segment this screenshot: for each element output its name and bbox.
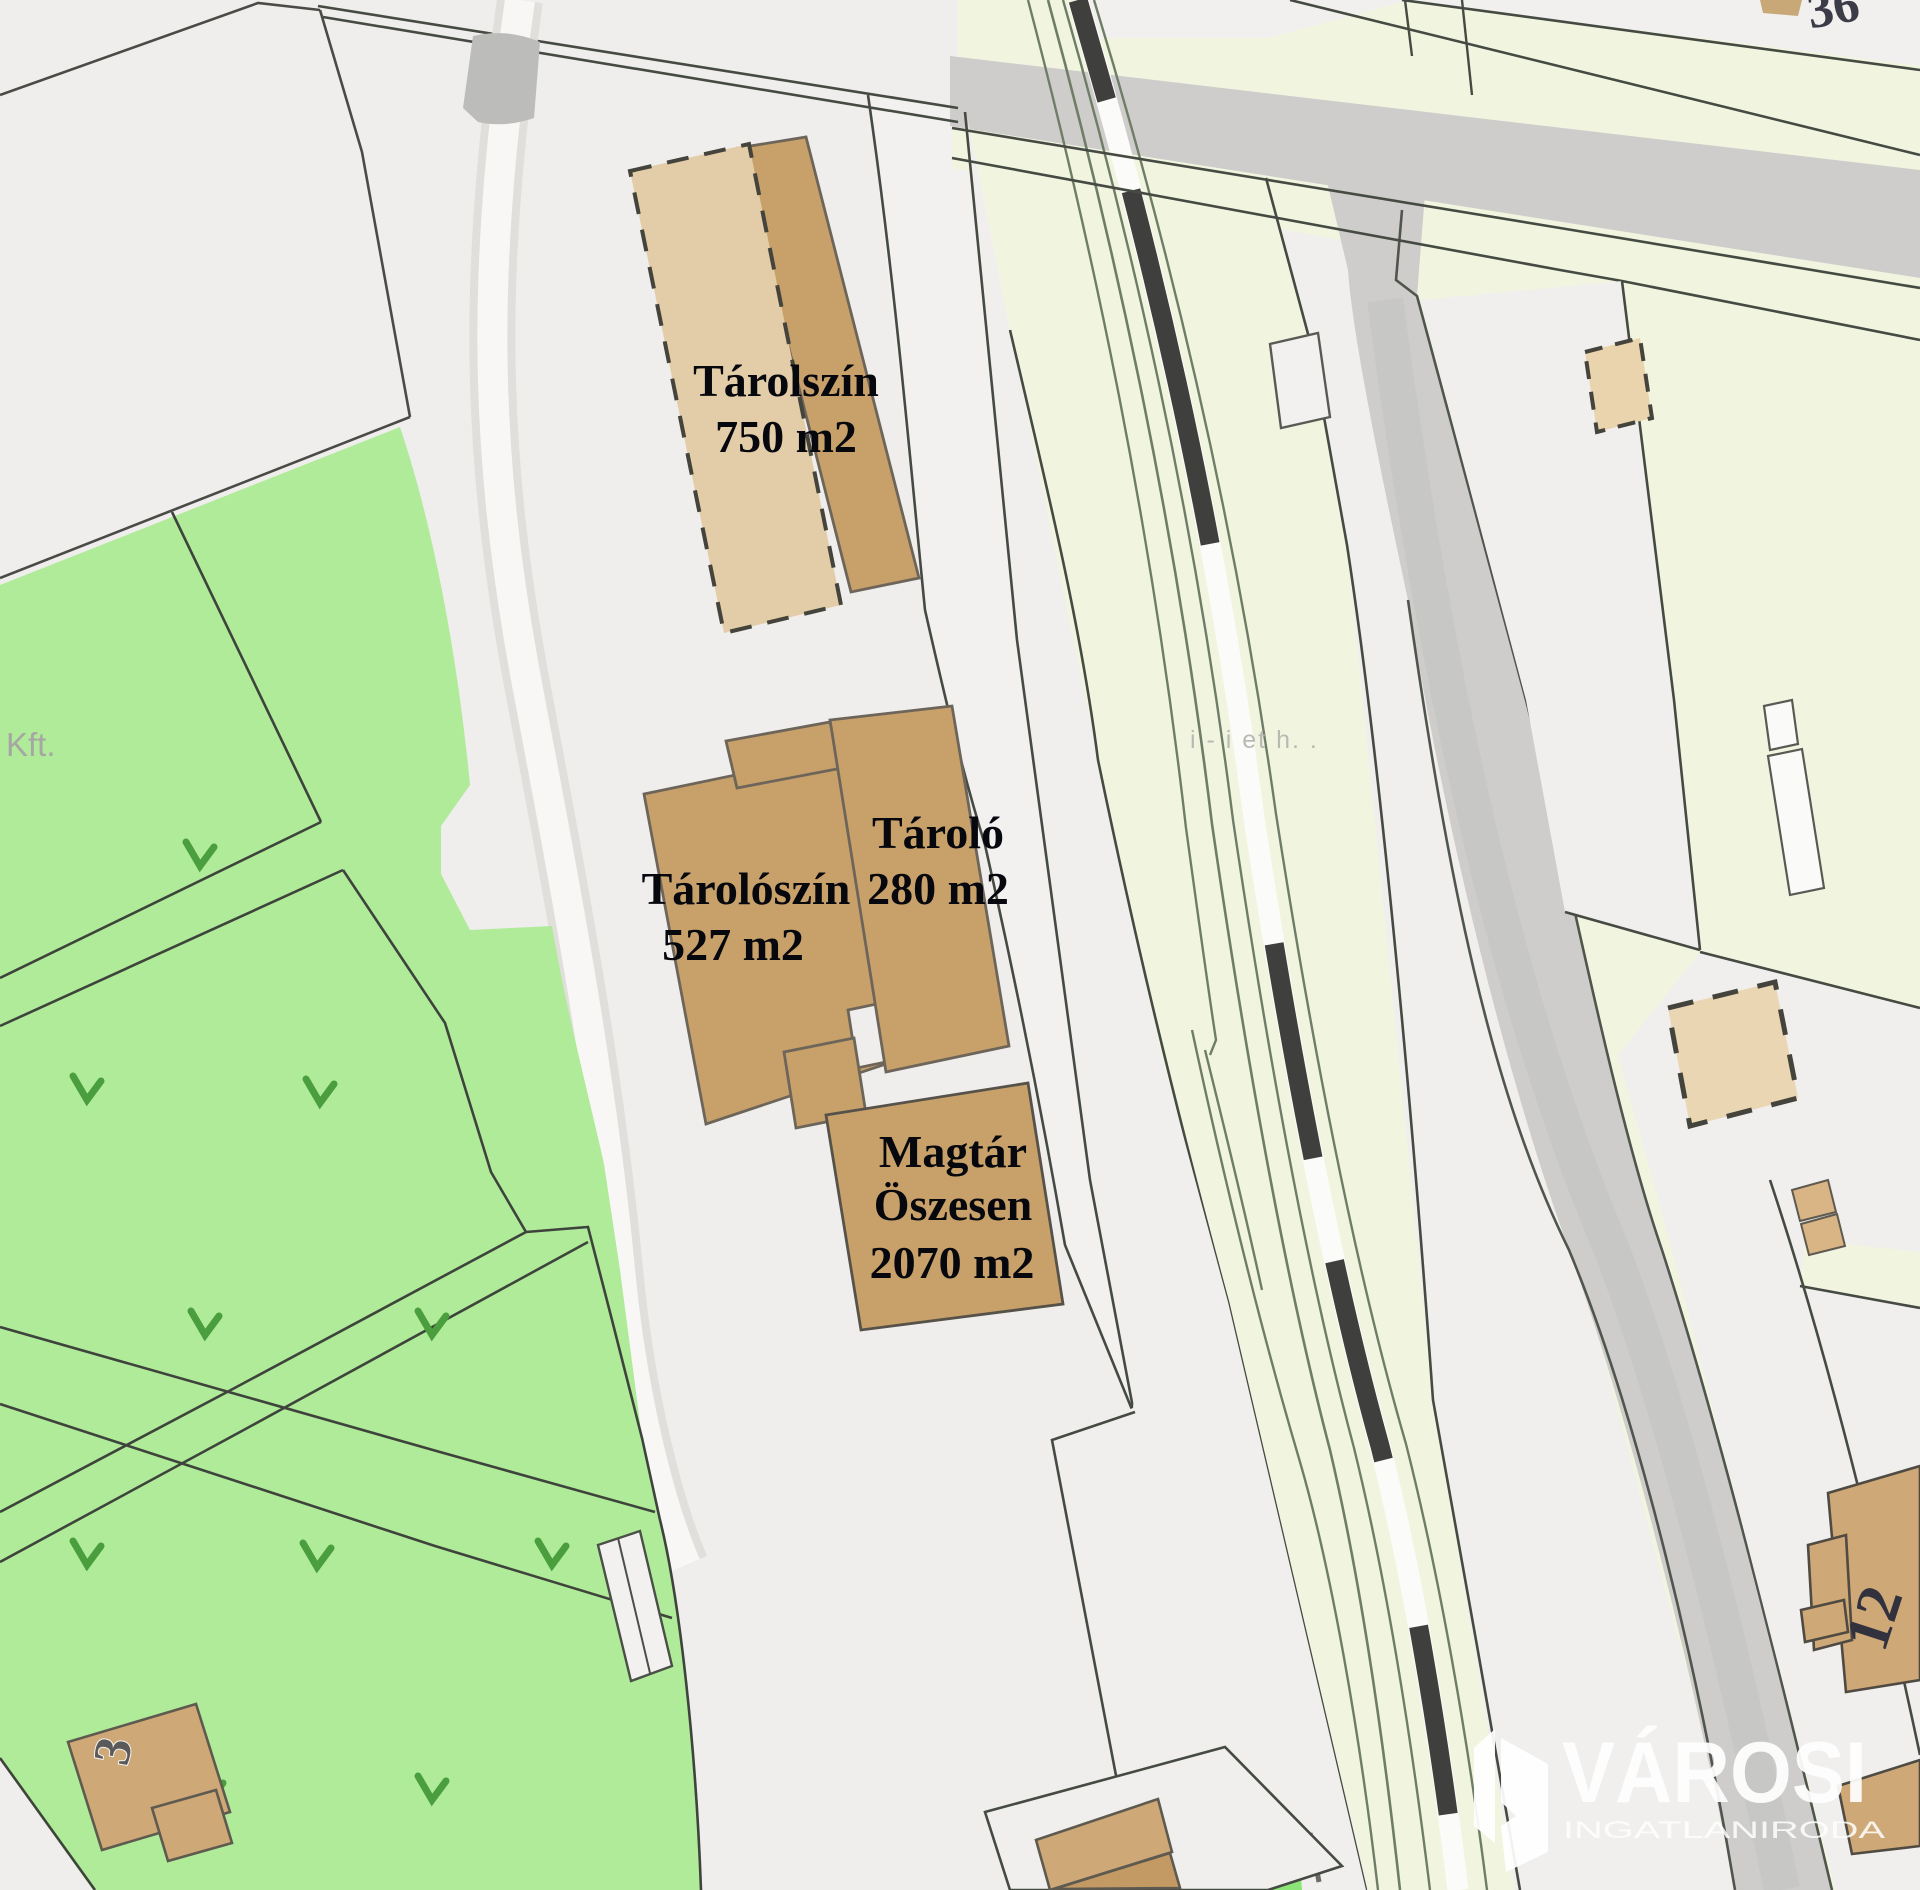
- svg-text:Öszesen: Öszesen: [874, 1179, 1032, 1230]
- svg-text:Tárolszín: Tárolszín: [693, 355, 879, 406]
- svg-text:VÁROSI: VÁROSI: [1562, 1725, 1867, 1821]
- svg-text:527 m2: 527 m2: [662, 919, 804, 970]
- svg-text:Magtár: Magtár: [879, 1126, 1027, 1177]
- svg-text:INGATLANIRODA: INGATLANIRODA: [1563, 1817, 1885, 1844]
- svg-text:Tárolószín: Tárolószín: [642, 863, 851, 914]
- svg-text:2070 m2: 2070 m2: [870, 1237, 1035, 1288]
- svg-text:750 m2: 750 m2: [715, 411, 857, 462]
- svg-text:280 m2: 280 m2: [867, 863, 1009, 914]
- svg-text:Tároló: Tároló: [872, 807, 1004, 858]
- svg-text:Kft.: Kft.: [6, 726, 56, 763]
- svg-text:i - i et h. .: i - i et h. .: [1190, 726, 1319, 754]
